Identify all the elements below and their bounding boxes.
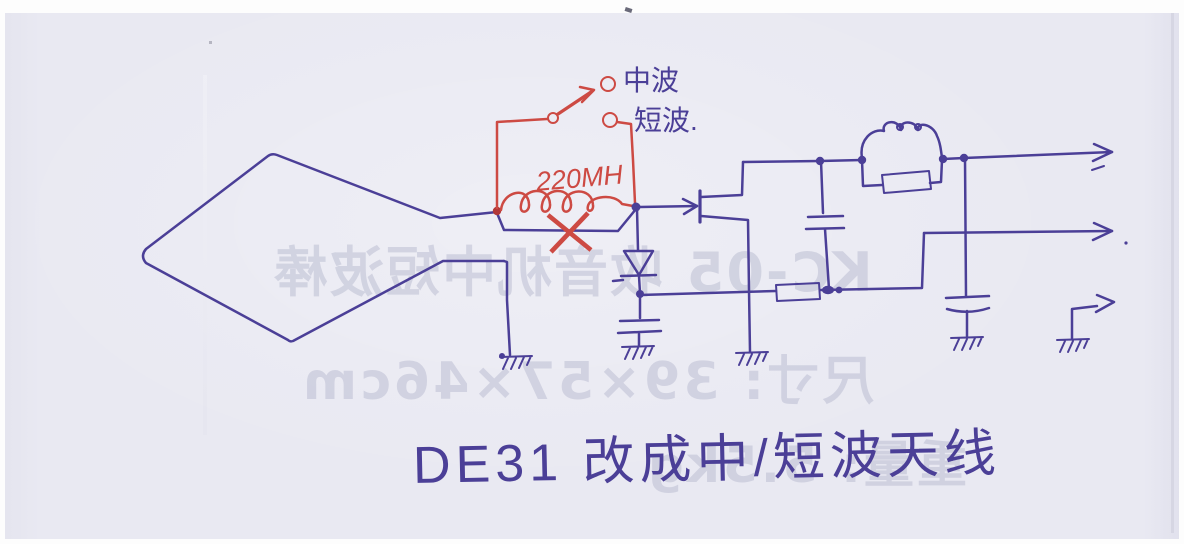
loading-coil-220: 220MH xyxy=(501,159,633,211)
antenna-cold-lead xyxy=(504,261,510,355)
ground-output-arrow xyxy=(1072,295,1114,338)
arrowhead-icon xyxy=(1096,295,1114,312)
ground-symbol-output xyxy=(1057,339,1089,352)
transistor-source-lead xyxy=(701,216,750,352)
ground-symbol-diode-cap xyxy=(622,346,654,359)
mid-wire xyxy=(640,233,924,301)
scanned-schematic-page: KC-05 收音机中短波棒 尺寸: 39×57×46cm 重量: 5.5kg xyxy=(0,0,1184,544)
output-wire-1 xyxy=(943,144,1112,170)
ink-stray xyxy=(1092,166,1104,170)
transistor-drain-lead xyxy=(701,162,743,197)
damping-resistor xyxy=(882,171,931,193)
junction-dot xyxy=(822,286,834,294)
sw-band-label: 短波. xyxy=(634,105,698,136)
junction-dot xyxy=(632,203,641,212)
resistor xyxy=(776,283,820,301)
transistor xyxy=(700,162,750,352)
filter-capacitor-left xyxy=(618,295,661,346)
ink-speck xyxy=(1124,241,1127,244)
detector-diode xyxy=(613,209,656,293)
top-rail xyxy=(743,157,862,165)
output-wire-2 xyxy=(924,223,1128,245)
sw-contact-icon xyxy=(603,113,617,127)
ground-symbol-source xyxy=(736,352,768,365)
rf-choke-parallel-resistor xyxy=(858,122,947,193)
loop-antenna xyxy=(143,154,532,369)
coupling-capacitor xyxy=(806,161,844,289)
choke-coil xyxy=(862,122,942,158)
switch-arm xyxy=(558,92,591,114)
mw-band-label: 中波 xyxy=(623,65,679,96)
schematic-drawing: 220MH 中波 短波. DE31 改成中/短波天线 xyxy=(0,0,1184,544)
page-title: DE31 改成中/短波天线 xyxy=(412,425,1001,495)
x-mark-crossout xyxy=(548,213,591,252)
inductor-value-label: 220MH xyxy=(534,159,625,197)
bypass-capacitor-right xyxy=(946,158,989,336)
mw-contact-icon xyxy=(601,77,615,91)
signal-wire-arrow xyxy=(640,199,697,214)
junction-dot xyxy=(836,287,843,294)
ground-symbol-antenna xyxy=(500,356,532,369)
ground-symbol-right-cap xyxy=(951,337,983,350)
